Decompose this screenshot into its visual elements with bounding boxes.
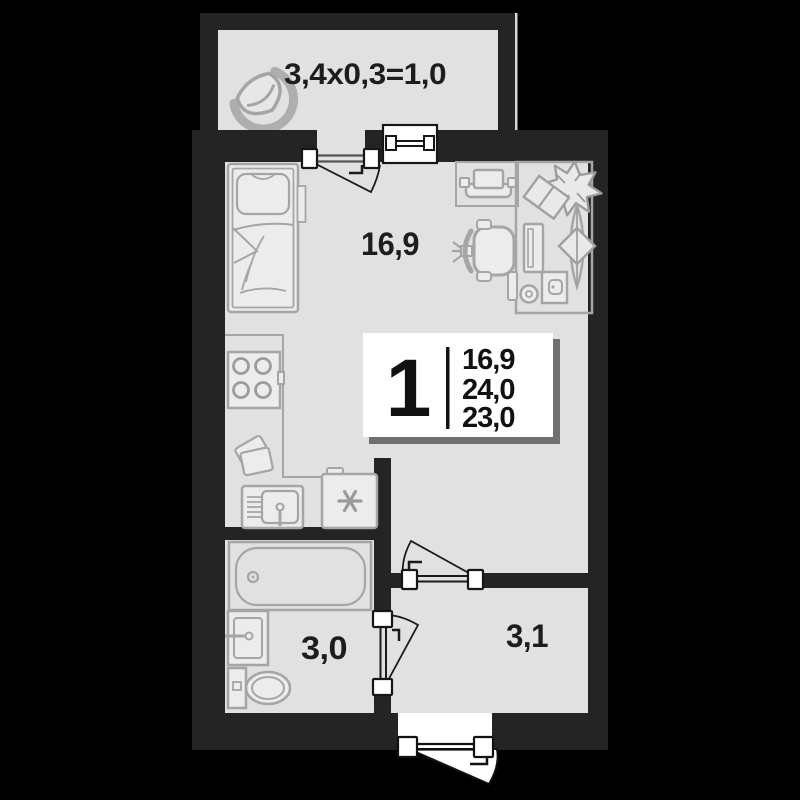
door-hinge	[373, 611, 392, 627]
bathroom-area-label: 3,0	[301, 630, 347, 666]
nightstand-icon	[298, 186, 306, 222]
toilet-icon	[228, 668, 290, 708]
area-reduced: 23,0	[462, 402, 514, 434]
hallway-area-label: 3,1	[506, 618, 548, 654]
fridge-icon	[322, 468, 377, 528]
area-living: 16,9	[462, 344, 515, 376]
floor-plan: 3,4x0,3=1,0	[0, 0, 800, 800]
door-hinge	[468, 570, 483, 589]
info-card: 1 16,9 24,0 23,0	[363, 333, 560, 444]
washbasin-icon	[225, 611, 268, 665]
door-hinge	[474, 737, 493, 757]
balcony: 3,4x0,3=1,0	[200, 13, 518, 141]
door-hinge	[364, 149, 379, 168]
trash-bin-icon	[508, 272, 517, 300]
door-hinge	[398, 737, 417, 757]
monitor-icon	[524, 224, 543, 272]
wall-bottom	[192, 713, 588, 750]
mug-icon	[521, 286, 538, 303]
door-hinge	[402, 570, 417, 589]
balcony-wall-left	[200, 13, 218, 130]
door-hinge	[373, 679, 392, 695]
rooms-count: 1	[386, 343, 431, 434]
balcony-label: 3,4x0,3=1,0	[284, 58, 446, 91]
balcony-wall-top	[200, 13, 516, 31]
balcony-door-opening	[317, 129, 365, 163]
stove-icon	[228, 352, 284, 408]
balcony-wall-edge	[515, 13, 518, 130]
card-divider	[446, 347, 450, 429]
bed-icon	[228, 164, 298, 312]
lockbox-icon	[542, 272, 567, 303]
wall-left	[192, 130, 225, 750]
room-area-label: 16,9	[361, 226, 419, 262]
balcony-wall-right	[498, 13, 516, 130]
bath-door-opening	[374, 627, 391, 679]
sink-icon	[242, 486, 303, 528]
window	[383, 125, 437, 163]
door-hinge	[302, 149, 317, 168]
